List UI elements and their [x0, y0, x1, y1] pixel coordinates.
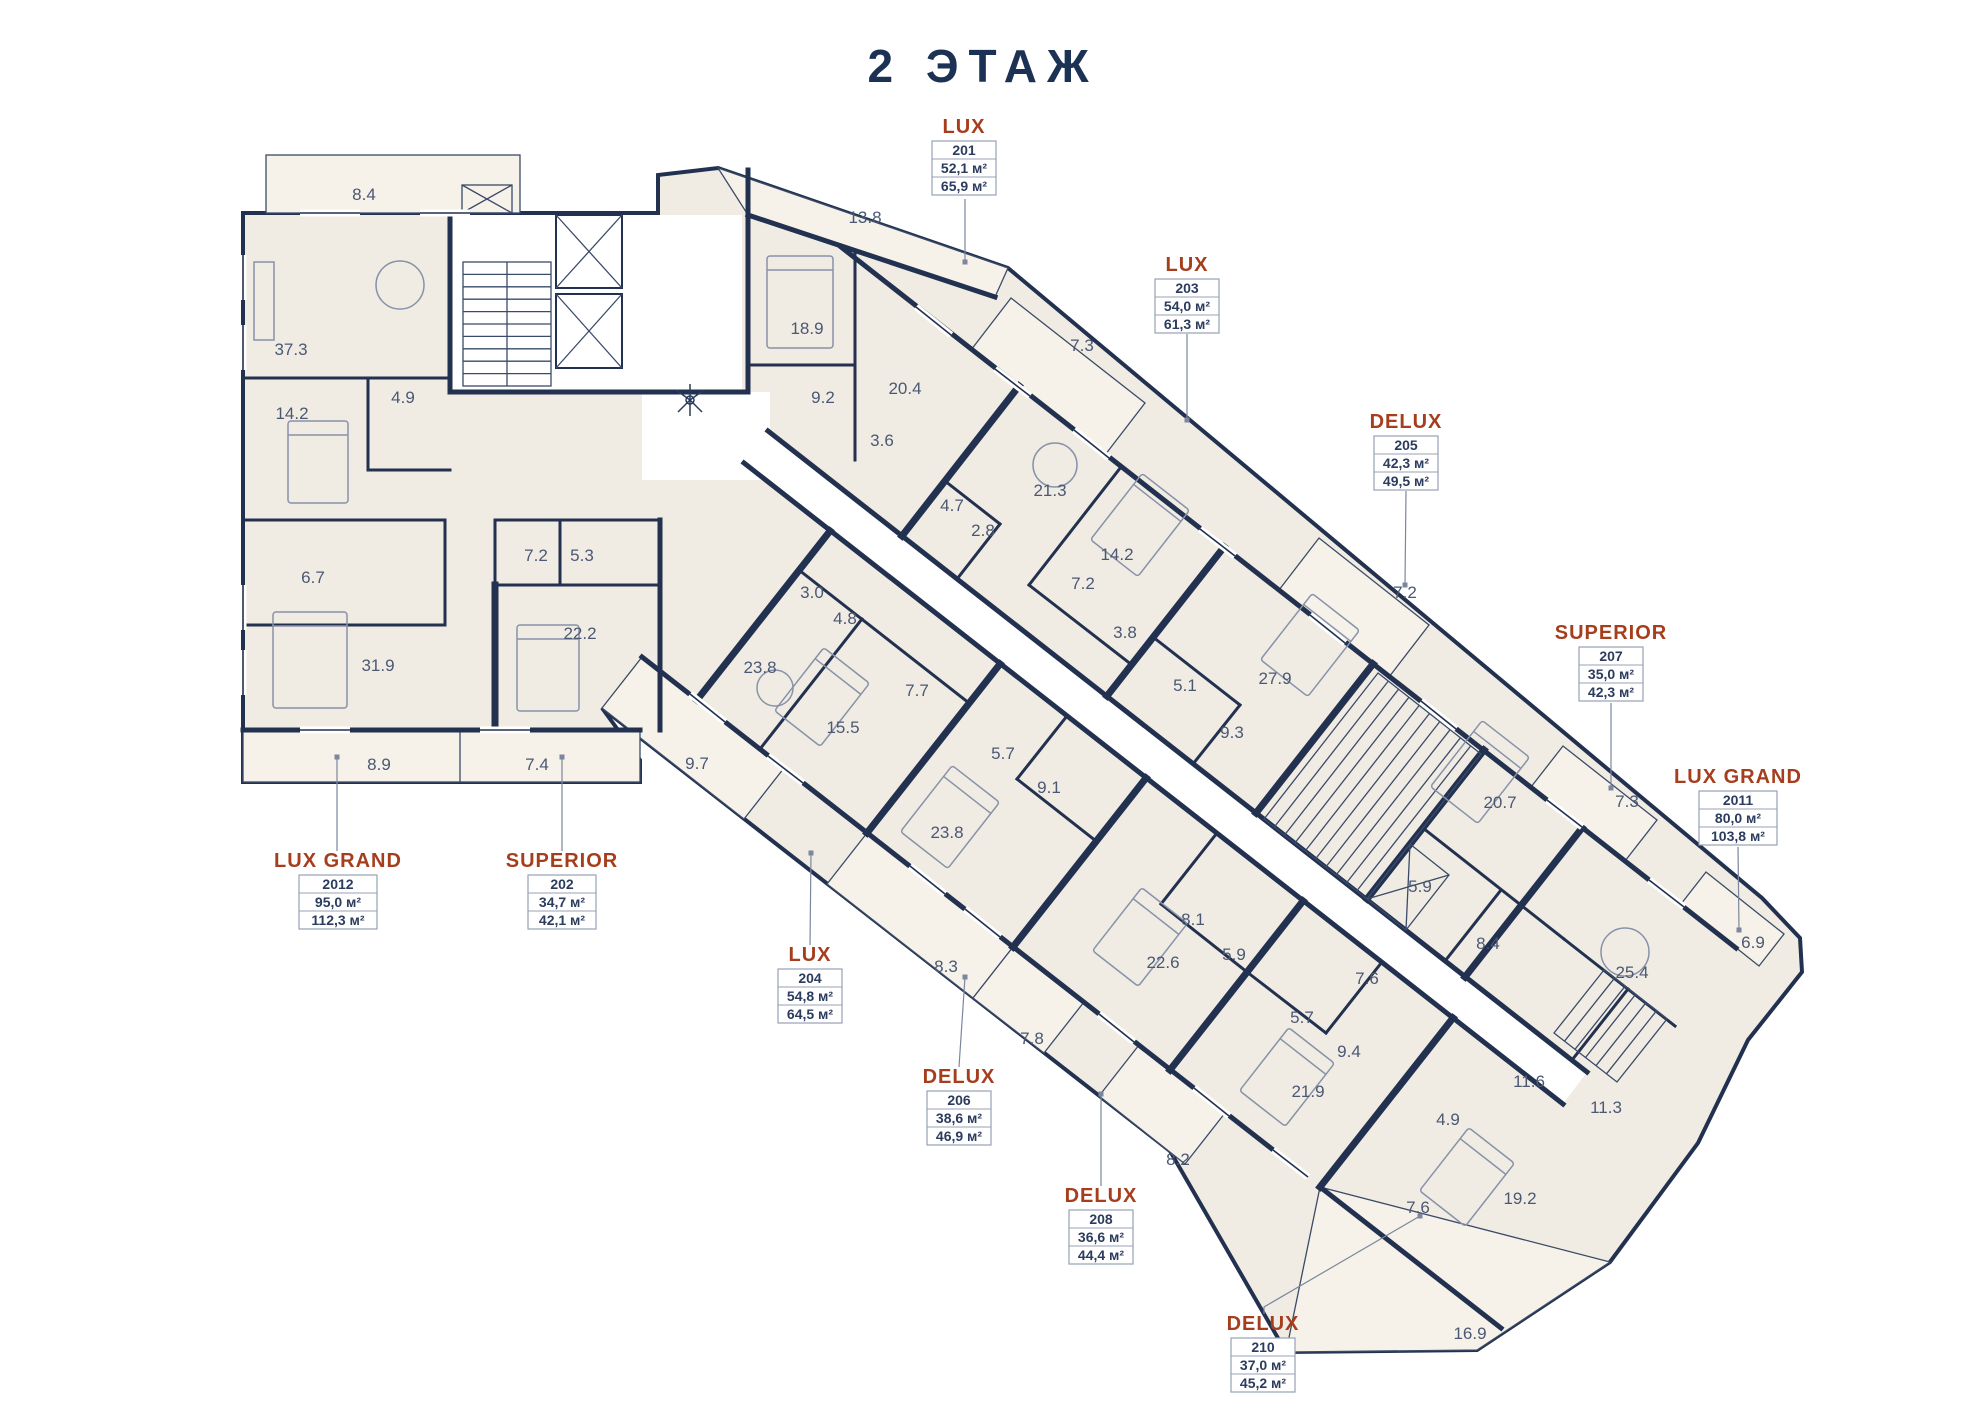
leader-dot [963, 260, 968, 265]
room-area-label: 5.1 [1173, 676, 1197, 695]
room-area-label: 18.9 [790, 319, 823, 338]
unit-area-total: 42,1 м² [539, 912, 585, 928]
unit-area: 52,1 м² [941, 160, 987, 176]
room-area-label: 4.9 [1436, 1110, 1460, 1129]
unit-area: 36,6 м² [1078, 1229, 1124, 1245]
room-area-label: 16.9 [1453, 1324, 1486, 1343]
room-area-label: 8.4 [352, 185, 376, 204]
room-area-label: 9.2 [811, 388, 835, 407]
unit-type-label: SUPERIOR [506, 850, 618, 872]
unit-area-total: 44,4 м² [1078, 1247, 1124, 1263]
leader-dot [963, 975, 968, 980]
leader-dot [1099, 1092, 1104, 1097]
floor-plan-page: 8.437.34.914.26.731.97.25.322.28.97.49.7… [0, 0, 1980, 1414]
room-area-label: 11.6 [1513, 1072, 1545, 1091]
leader-dot [1403, 583, 1408, 588]
room-area-label: 5.9 [1222, 945, 1246, 964]
unit-type-label: LUX [789, 944, 832, 966]
room-area-label: 4.7 [940, 496, 964, 515]
room-area-label: 3.8 [1113, 623, 1137, 642]
room-area-label: 8.4 [1476, 934, 1500, 953]
unit-number: 201 [952, 142, 976, 158]
room-area-label: 37.3 [274, 340, 307, 359]
room-area-label: 7.2 [524, 546, 548, 565]
unit-area: 34,7 м² [539, 894, 585, 910]
room-area-label: 7.2 [1071, 574, 1095, 593]
room-area-label: 7.7 [905, 681, 929, 700]
unit-area-total: 42,3 м² [1588, 684, 1634, 700]
room-area-label: 14.2 [1100, 545, 1133, 564]
room-area-label: 14.2 [275, 404, 308, 423]
leader-dot [809, 851, 814, 856]
room-area-label: 23.8 [743, 658, 776, 677]
room-area-label: 5.3 [570, 546, 594, 565]
unit-number: 208 [1089, 1211, 1113, 1227]
room-area-label: 2.8 [971, 521, 995, 540]
room-area-label: 8.9 [367, 755, 391, 774]
room-area-label: 6.7 [301, 568, 325, 587]
unit-area-total: 103,8 м² [1711, 828, 1765, 844]
room-area-label: 3.6 [870, 431, 894, 450]
room-area-label: 21.9 [1291, 1082, 1324, 1101]
room-area-label: 3.0 [800, 583, 824, 602]
unit-area: 35,0 м² [1588, 666, 1634, 682]
page-title: 2 ЭТАЖ [867, 40, 1098, 92]
room-area-label: 9.7 [685, 754, 709, 773]
unit-area: 37,0 м² [1240, 1357, 1286, 1373]
unit-label-205[interactable]: DELUX20542,3 м²49,5 м² [1370, 411, 1443, 588]
unit-type-label: LUX GRAND [1674, 766, 1802, 788]
room-area-label: 20.7 [1483, 793, 1516, 812]
unit-number: 203 [1175, 280, 1199, 296]
room-area-label: 9.3 [1220, 723, 1244, 742]
unit-type-label: DELUX [1227, 1313, 1300, 1335]
unit-area-total: 46,9 м² [936, 1128, 982, 1144]
leader-line [1405, 491, 1406, 585]
room-area-label: 5.7 [991, 744, 1015, 763]
unit-area: 38,6 м² [936, 1110, 982, 1126]
room-area-label: 27.9 [1258, 669, 1291, 688]
unit-area: 80,0 м² [1715, 810, 1761, 826]
unit-type-label: DELUX [1370, 411, 1443, 433]
room-area-label: 5.7 [1290, 1008, 1314, 1027]
room-area-label: 25.4 [1615, 963, 1648, 982]
unit-type-label: DELUX [1065, 1185, 1138, 1207]
room-area-label: 9.1 [1037, 778, 1061, 797]
unit-type-label: LUX GRAND [274, 850, 402, 872]
unit-area: 95,0 м² [315, 894, 361, 910]
leader-dot [335, 755, 340, 760]
unit-number: 205 [1394, 437, 1418, 453]
unit-number: 206 [947, 1092, 971, 1108]
unit-type-label: LUX [943, 116, 986, 138]
room-area-label: 22.6 [1146, 953, 1179, 972]
unit-number: 2011 [1723, 792, 1754, 808]
room-area-label: 9.4 [1337, 1042, 1361, 1061]
room-area-label: 5.9 [1408, 877, 1432, 896]
room-area-label: 20.4 [888, 379, 921, 398]
room-area-label: 19.2 [1503, 1189, 1536, 1208]
leader-dot [1737, 928, 1742, 933]
room-area-label: 4.9 [391, 388, 415, 407]
unit-area-total: 64,5 м² [787, 1006, 833, 1022]
leader-dot [1418, 1214, 1423, 1219]
room-area-label: 7.6 [1355, 969, 1379, 988]
room-area-label: 22.2 [563, 624, 596, 643]
room-area-label: 7.8 [1020, 1029, 1044, 1048]
room-area-label: 23.8 [930, 823, 963, 842]
room-area-label: 7.3 [1070, 336, 1094, 355]
unit-type-label: LUX [1166, 254, 1209, 276]
room-area-label: 21.3 [1033, 481, 1066, 500]
unit-number: 210 [1251, 1339, 1275, 1355]
unit-number: 207 [1599, 648, 1623, 664]
unit-area-total: 112,3 м² [311, 912, 365, 928]
leader-dot [1185, 418, 1190, 423]
room-area-label: 13.8 [848, 208, 881, 227]
room-area-label: 4.8 [833, 609, 857, 628]
unit-area-total: 61,3 м² [1164, 316, 1210, 332]
unit-number: 204 [798, 970, 822, 986]
unit-area: 54,8 м² [787, 988, 833, 1004]
room-area-label: 7.4 [525, 755, 549, 774]
room-area-label: 15.5 [826, 718, 859, 737]
room-area-label: 31.9 [361, 656, 394, 675]
unit-area: 54,0 м² [1164, 298, 1210, 314]
room-area-label: 8.1 [1181, 910, 1205, 929]
balcony-84 [266, 155, 520, 213]
room-area-label: 8.2 [1166, 1150, 1190, 1169]
unit-area-total: 65,9 м² [941, 178, 987, 194]
unit-type-label: SUPERIOR [1555, 622, 1667, 644]
unit-label-201[interactable]: LUX20152,1 м²65,9 м² [932, 116, 996, 265]
unit-area-total: 49,5 м² [1383, 473, 1429, 489]
room-area-label: 6.9 [1741, 933, 1765, 952]
unit-area-total: 45,2 м² [1240, 1375, 1286, 1391]
room-area-label: 8.3 [934, 957, 958, 976]
unit-area: 42,3 м² [1383, 455, 1429, 471]
room-area-label: 11.3 [1590, 1098, 1622, 1117]
unit-number: 2012 [322, 876, 353, 892]
room-area-label: 7.3 [1615, 792, 1639, 811]
unit-type-label: DELUX [923, 1066, 996, 1088]
leader-dot [560, 755, 565, 760]
leader-dot [1609, 786, 1614, 791]
unit-number: 202 [550, 876, 574, 892]
floor-plan-svg: 8.437.34.914.26.731.97.25.322.28.97.49.7… [0, 0, 1980, 1414]
